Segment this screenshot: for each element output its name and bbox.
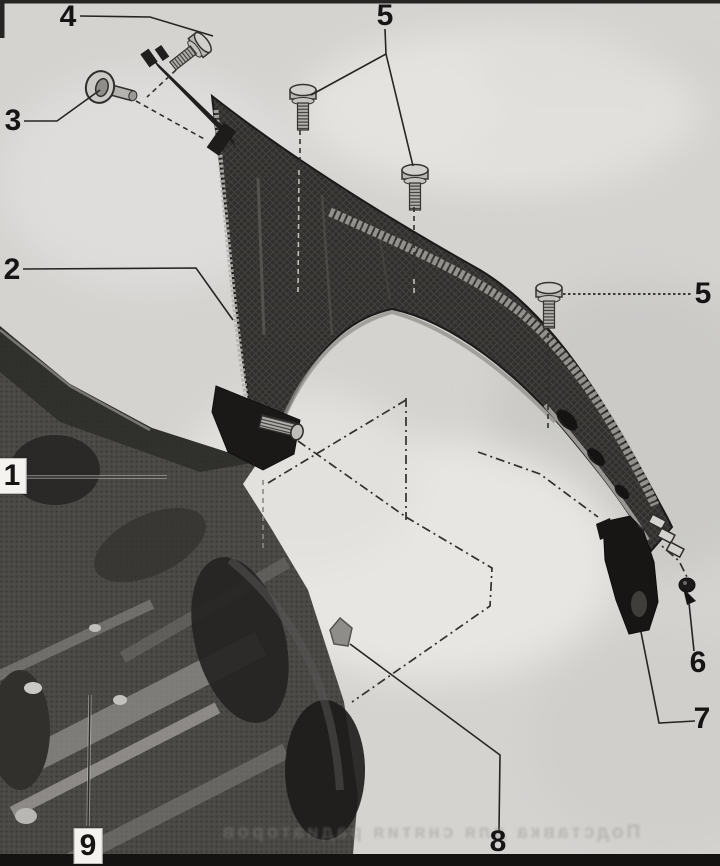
callout-7: 7 [694,704,711,734]
callout-5-right: 5 [695,279,712,309]
callout-8: 8 [490,827,507,857]
callout-3: 3 [5,106,22,136]
callout-2: 2 [4,255,21,285]
bleed-through-text: Подставка для снятия радиаторов [150,822,710,844]
diagram-canvas [0,0,720,866]
callout-4: 4 [60,2,77,32]
bolt-4 [166,30,215,75]
callout-5-top: 5 [377,1,394,31]
callout-6: 6 [690,648,707,678]
callout-1: 1 [0,458,26,494]
nut [679,578,696,605]
scanned-manual-page: Подставка для снятия радиаторов 4 3 5 2 … [0,0,720,866]
callout-9: 9 [74,828,103,864]
bolt-5-middle [402,165,428,211]
